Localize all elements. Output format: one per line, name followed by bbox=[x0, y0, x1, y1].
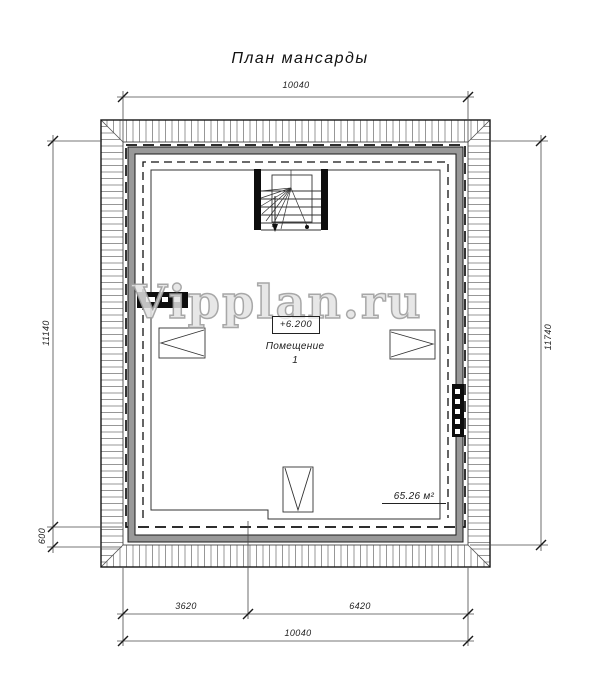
stairs-symbol bbox=[254, 169, 328, 232]
dim-left-height: 11140 bbox=[41, 303, 51, 363]
room-name: Помещение bbox=[245, 341, 345, 352]
floor-plan-drawing bbox=[0, 0, 600, 677]
flue-block-right bbox=[452, 384, 464, 437]
dim-left-eave: 600 bbox=[37, 506, 47, 566]
window-symbol-left bbox=[159, 328, 205, 358]
dim-bottom-right: 6420 bbox=[330, 601, 390, 611]
window-symbol-bottom bbox=[283, 467, 313, 512]
elevation-marker: +6.200 bbox=[272, 316, 320, 334]
room-area: 65.26 м² bbox=[382, 491, 446, 504]
window-symbol-right bbox=[390, 330, 435, 359]
dim-bottom-left: 3620 bbox=[156, 601, 216, 611]
floor-plan-canvas: Vipplan.ru План мансарды 10040 11140 600… bbox=[0, 0, 600, 677]
room-number: 1 bbox=[245, 355, 345, 366]
dim-top-total: 10040 bbox=[266, 80, 326, 90]
dim-bottom-total: 10040 bbox=[268, 628, 328, 638]
drawing-title: План мансарды bbox=[150, 50, 450, 68]
flue-block-left bbox=[137, 292, 188, 308]
dim-right-height: 11740 bbox=[543, 307, 553, 367]
